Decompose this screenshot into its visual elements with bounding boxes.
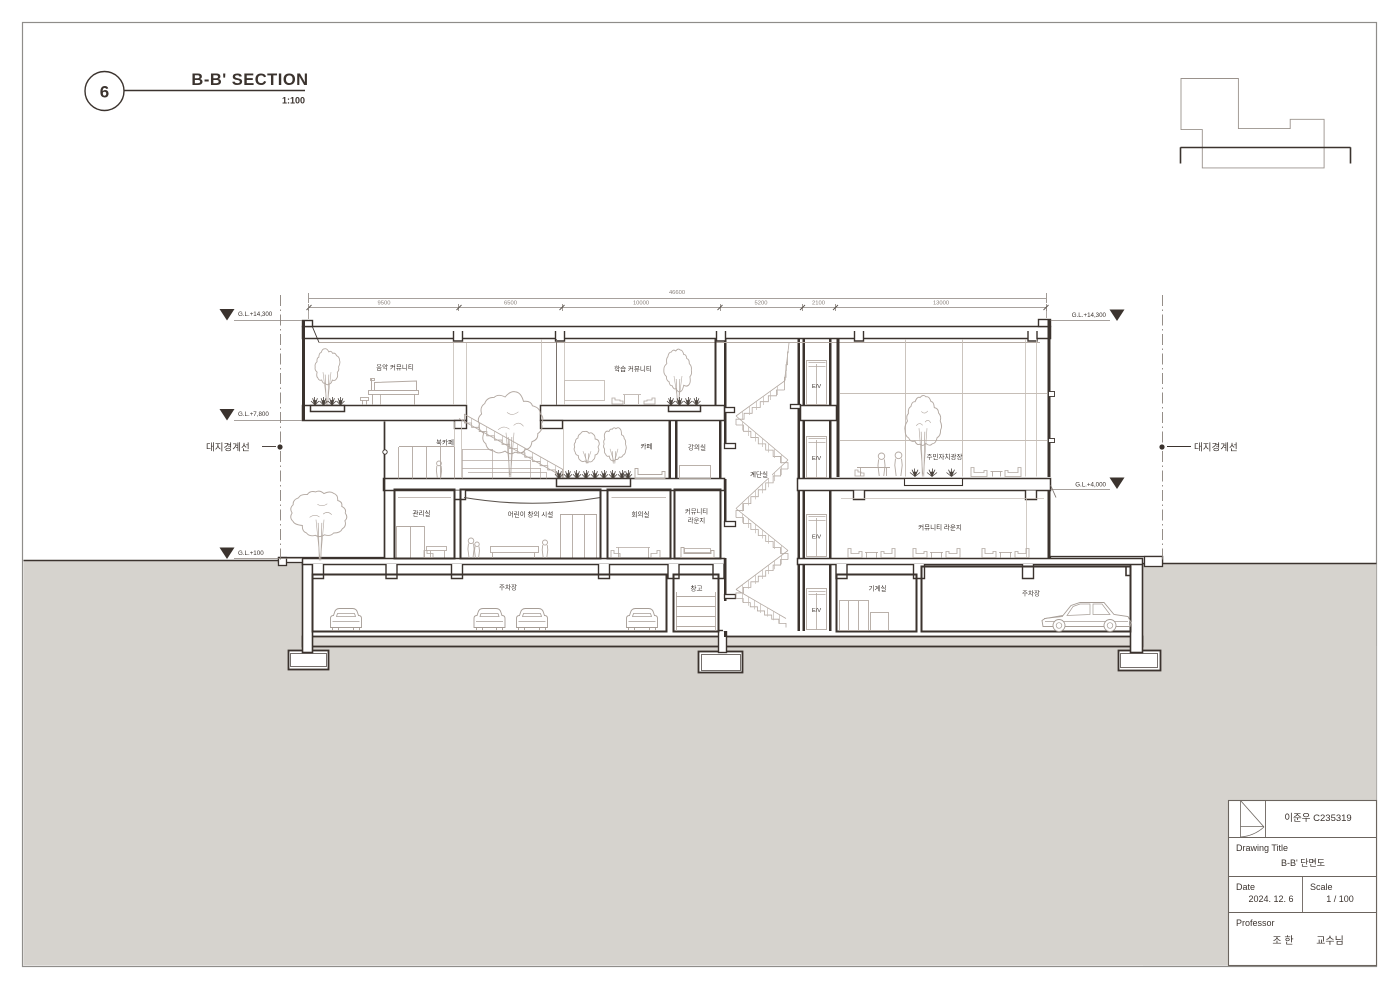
svg-text:북카페: 북카페 [436,438,454,447]
svg-text:대지경계선: 대지경계선 [206,442,250,454]
svg-text:2024. 12. 6: 2024. 12. 6 [1248,894,1293,904]
svg-text:대지경계선: 대지경계선 [1194,442,1238,454]
svg-text:9500: 9500 [378,301,391,307]
svg-text:1:100: 1:100 [282,96,305,106]
svg-text:커뮤니티: 커뮤니티 [685,507,708,516]
svg-text:E/V: E/V [812,608,821,614]
svg-text:교수님: 교수님 [1316,935,1344,947]
svg-text:학습 커뮤니티: 학습 커뮤니티 [614,364,652,373]
svg-text:계단실: 계단실 [750,470,768,479]
svg-text:Date: Date [1236,882,1255,892]
svg-text:G.L.+4,000: G.L.+4,000 [1075,482,1106,489]
svg-text:주민자치광장: 주민자치광장 [927,452,963,461]
svg-text:1 / 100: 1 / 100 [1326,894,1354,904]
svg-text:6500: 6500 [504,301,517,307]
svg-text:기계실: 기계실 [869,584,887,593]
svg-text:G.L.+14,300: G.L.+14,300 [238,311,273,318]
svg-text:E/V: E/V [812,456,821,462]
svg-text:주차장: 주차장 [1022,589,1040,598]
svg-text:2100: 2100 [812,301,825,307]
svg-text:B-B' SECTION: B-B' SECTION [191,71,308,89]
svg-text:조 한: 조 한 [1272,935,1293,947]
svg-text:6: 6 [100,83,109,102]
svg-text:Professor: Professor [1236,918,1275,928]
svg-text:창고: 창고 [691,585,703,593]
svg-text:Scale: Scale [1310,882,1333,892]
svg-text:Drawing Title: Drawing Title [1236,843,1288,853]
svg-text:이준우 C235319: 이준우 C235319 [1284,813,1351,824]
svg-text:카페: 카페 [641,442,653,451]
svg-text:관리실: 관리실 [413,509,431,518]
svg-text:E/V: E/V [812,384,821,390]
svg-text:G.L.+100: G.L.+100 [238,550,264,557]
svg-text:46600: 46600 [669,290,685,296]
svg-text:음악 커뮤니티: 음악 커뮤니티 [376,363,414,372]
svg-text:10000: 10000 [633,301,649,307]
svg-text:강의실: 강의실 [688,443,706,452]
svg-text:E/V: E/V [812,535,821,541]
svg-text:13000: 13000 [933,301,949,307]
svg-text:주차장: 주차장 [499,583,517,592]
svg-text:5200: 5200 [755,301,768,307]
svg-text:G.L.+14,300: G.L.+14,300 [1072,312,1107,319]
svg-text:커뮤니티 라운지: 커뮤니티 라운지 [918,523,962,532]
svg-text:회의실: 회의실 [632,510,650,519]
svg-text:어린이 창의 시설: 어린이 창의 시설 [508,510,553,519]
svg-text:G.L.+7,800: G.L.+7,800 [238,411,269,418]
svg-text:B-B' 단면도: B-B' 단면도 [1281,858,1325,868]
svg-text:라운지: 라운지 [688,516,705,525]
